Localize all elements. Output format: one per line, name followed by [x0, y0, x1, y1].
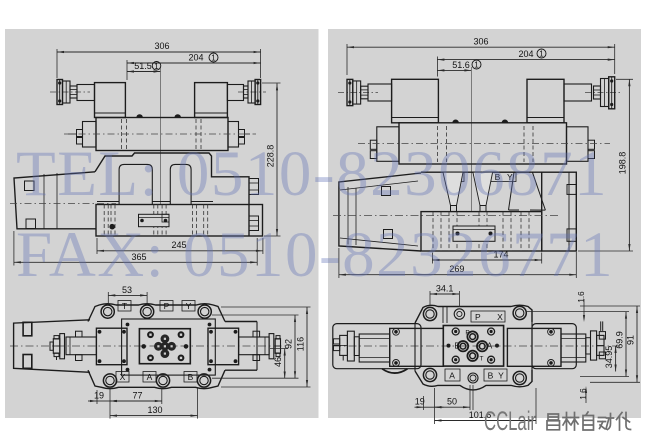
- svg-text:198.8: 198.8: [618, 152, 628, 175]
- svg-text:69.9: 69.9: [614, 331, 624, 349]
- svg-text:A: A: [449, 371, 455, 381]
- svg-text:A: A: [487, 342, 493, 351]
- svg-text:19: 19: [94, 390, 104, 400]
- svg-text:T: T: [122, 301, 127, 311]
- svg-text:34.95: 34.95: [604, 346, 614, 369]
- svg-text:46: 46: [273, 357, 283, 367]
- svg-text:A: A: [147, 372, 153, 382]
- svg-text:306: 306: [473, 37, 488, 47]
- svg-text:FAX: 0510-82326771: FAX: 0510-82326771: [16, 219, 614, 291]
- svg-text:1: 1: [539, 50, 544, 59]
- svg-text:B: B: [454, 342, 459, 351]
- svg-text:130: 130: [147, 405, 162, 415]
- svg-text:1.6: 1.6: [579, 388, 588, 400]
- svg-text:50: 50: [447, 397, 457, 407]
- svg-text:306: 306: [154, 41, 169, 51]
- svg-text:1: 1: [154, 62, 159, 71]
- svg-text:Y: Y: [186, 301, 192, 311]
- svg-text:X: X: [120, 372, 126, 382]
- svg-text:1: 1: [211, 54, 216, 63]
- svg-text:51.6: 51.6: [452, 60, 470, 70]
- svg-text:1.6: 1.6: [577, 291, 586, 303]
- svg-text:1: 1: [474, 61, 479, 70]
- svg-text:91: 91: [625, 335, 635, 345]
- svg-text:TEL: 0510-82306871: TEL: 0510-82306871: [16, 138, 608, 210]
- svg-text:X: X: [497, 312, 503, 322]
- svg-text:P: P: [164, 301, 170, 311]
- svg-text:51.5: 51.5: [134, 61, 152, 71]
- svg-text:CCLair: CCLair: [484, 406, 536, 436]
- svg-text:P: P: [475, 312, 481, 322]
- svg-text:116: 116: [295, 337, 305, 351]
- svg-text:B: B: [488, 371, 494, 381]
- svg-text:P: P: [465, 330, 469, 337]
- svg-text:204: 204: [518, 49, 533, 59]
- svg-text:204: 204: [188, 53, 203, 63]
- svg-text:92: 92: [283, 339, 293, 349]
- svg-text:Y: Y: [498, 371, 504, 381]
- svg-text:77: 77: [132, 390, 142, 400]
- svg-text:B: B: [188, 372, 194, 382]
- svg-text:T: T: [480, 356, 484, 363]
